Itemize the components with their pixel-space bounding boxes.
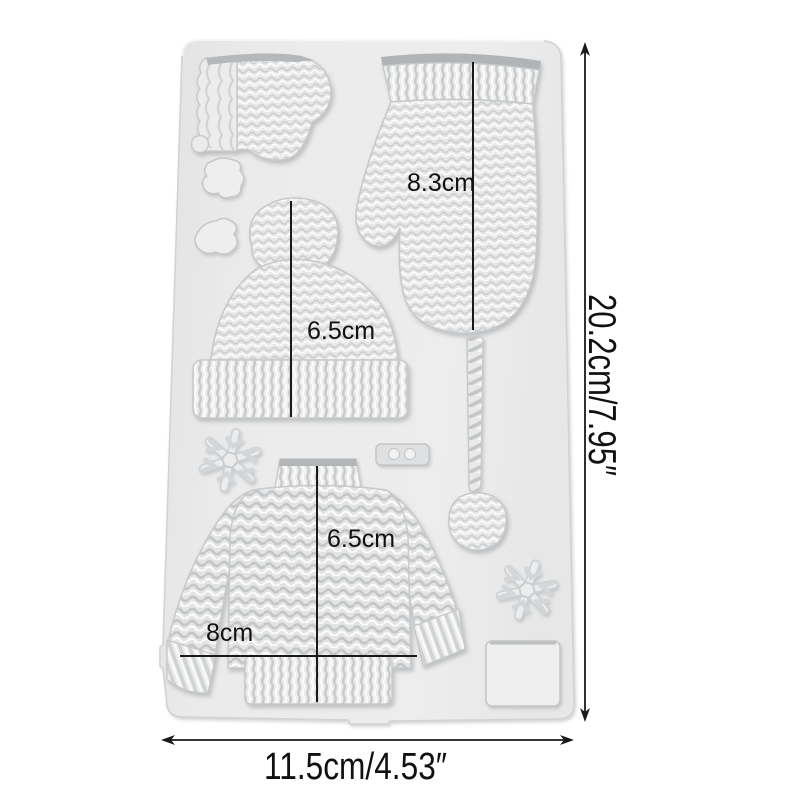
svg-text:8cm: 8cm — [206, 619, 253, 647]
svg-text:20.2cm/7.95″: 20.2cm/7.95″ — [580, 294, 623, 476]
svg-text:11.5cm/4.53″: 11.5cm/4.53″ — [264, 746, 447, 788]
svg-text:8.3cm: 8.3cm — [407, 169, 475, 197]
svg-text:6.5cm: 6.5cm — [327, 525, 395, 553]
svg-text:6.5cm: 6.5cm — [307, 317, 375, 345]
